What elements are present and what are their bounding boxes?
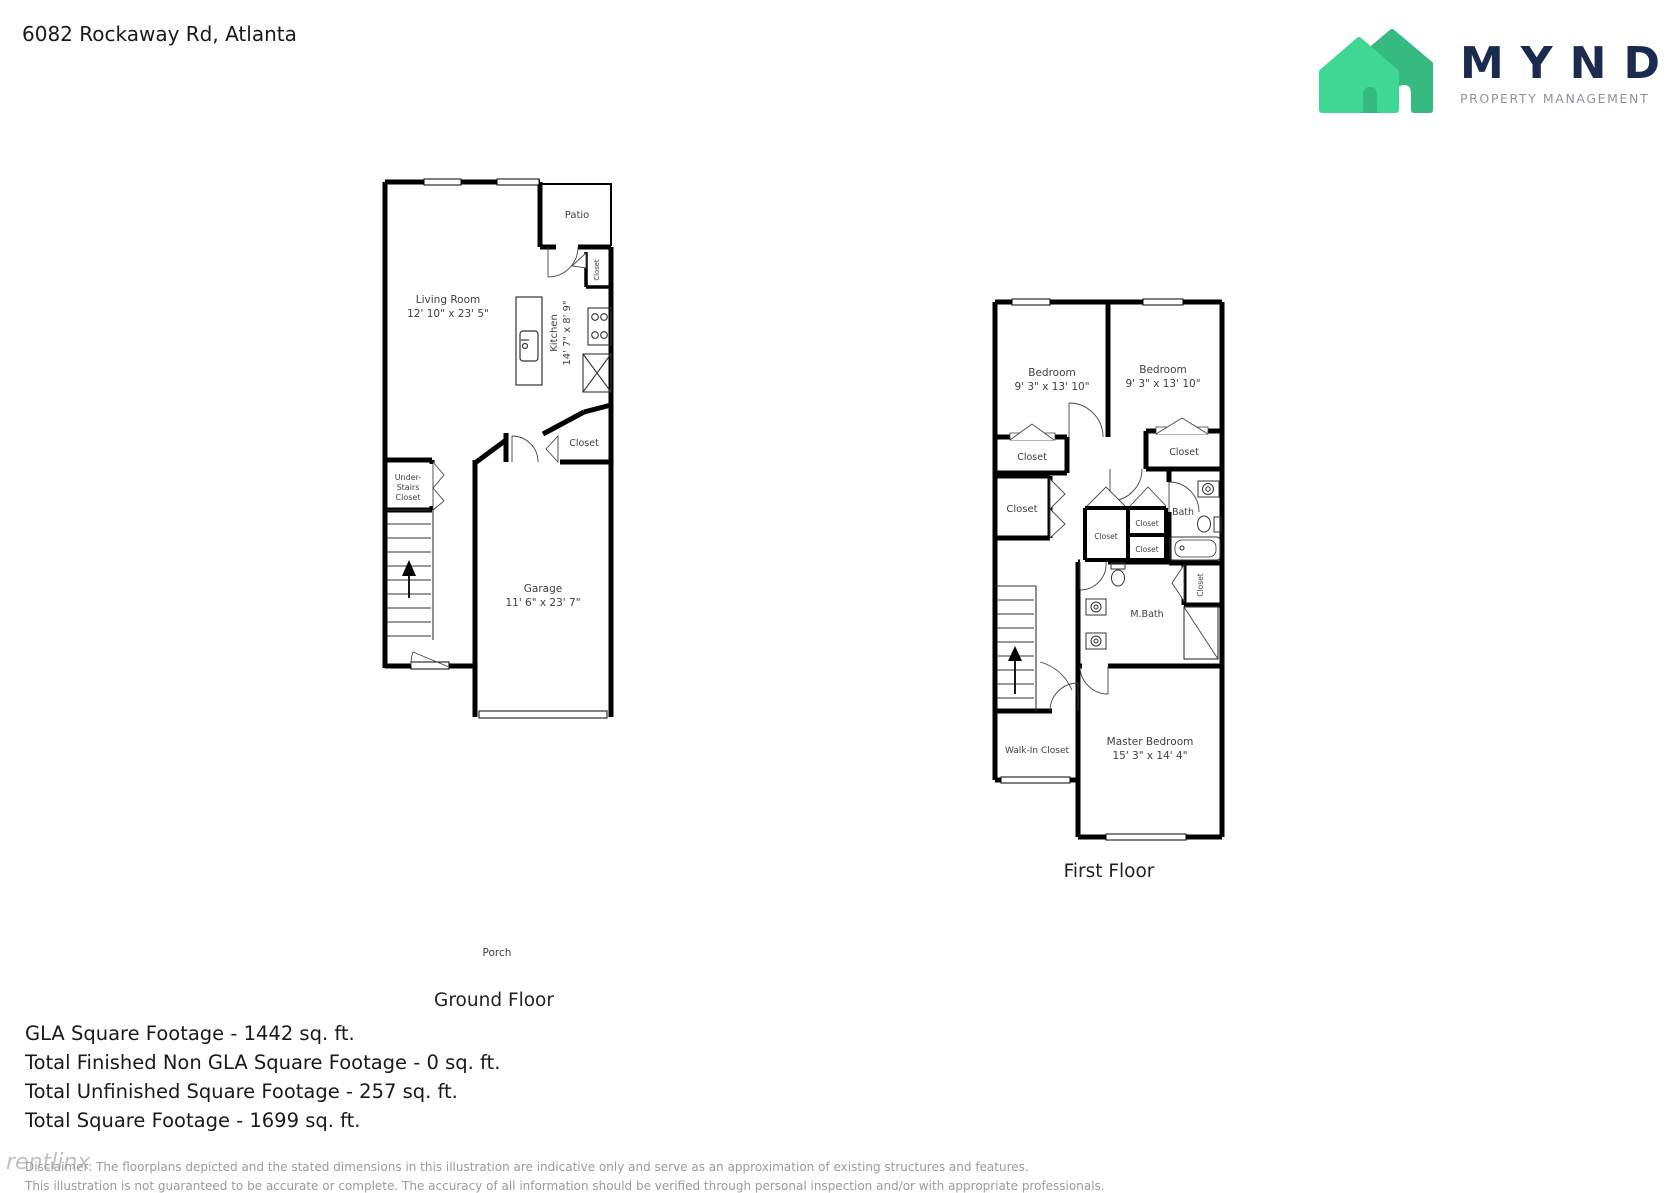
master-bedroom-dims: 15' 3" x 14' 4" <box>1112 750 1187 762</box>
ground-floor-title: Ground Floor <box>384 990 604 1011</box>
patio-label: Patio <box>565 210 590 221</box>
bedroom-left-label: Bedroom <box>1028 367 1076 379</box>
stat-line: Total Finished Non GLA Square Footage - … <box>25 1048 500 1077</box>
living-room-label: Living Room <box>416 294 480 306</box>
kitchen-island <box>516 297 542 385</box>
stat-line: Total Unfinished Square Footage - 257 sq… <box>25 1077 500 1106</box>
hall-closet-label: Closet <box>1006 504 1037 515</box>
disclaimer-line-2: This illustration is not guaranteed to b… <box>25 1179 1105 1193</box>
bedr-closet-label: Closet <box>1169 447 1199 458</box>
kitchen-label: Kitchen <box>549 314 560 352</box>
under-stairs-closet-line2: Stairs <box>397 483 420 492</box>
master-bedroom-label: Master Bedroom <box>1107 736 1194 748</box>
first-floor-title: First Floor <box>999 861 1219 882</box>
living-room-dims: 12' 10" x 23' 5" <box>407 308 489 320</box>
mbath-label: M.Bath <box>1130 609 1163 620</box>
under-stairs-closet-line1: Under- <box>395 473 422 482</box>
garage-door <box>479 711 607 718</box>
first-floor-plan: Bedroom 9' 3" x 13' 10" Bedroom 9' 3" x … <box>995 299 1222 840</box>
bath-toilet-icon <box>1198 516 1222 532</box>
garage-label: Garage <box>524 583 562 595</box>
stat-line: GLA Square Footage - 1442 sq. ft. <box>25 1019 500 1048</box>
under-stairs-closet-line3: Closet <box>396 493 421 502</box>
floorplan-canvas: Living Room 12' 10" x 23' 5" Patio Close… <box>0 0 1680 1188</box>
porch-label: Porch <box>483 947 512 959</box>
entry-threshold <box>411 662 449 669</box>
bath-label: Bath <box>1172 507 1194 518</box>
mbath-sinks-icon <box>1086 599 1106 649</box>
mbath-toilet-icon <box>1111 563 1125 586</box>
stat-line: Total Square Footage - 1699 sq. ft. <box>25 1106 500 1135</box>
small-closet-label-3: Closet <box>1135 545 1158 554</box>
disclaimer-line-1: Disclaimer: The floorplans depicted and … <box>25 1160 1029 1174</box>
small-closet-label-1: Closet <box>1094 532 1117 541</box>
bedroom-left-dims: 9' 3" x 13' 10" <box>1014 381 1089 393</box>
square-footage-stats: GLA Square Footage - 1442 sq. ft. Total … <box>25 1019 500 1135</box>
hall-closet-label: Closet <box>569 438 599 449</box>
counter-icon <box>583 354 611 392</box>
small-closet-label-2: Closet <box>1135 519 1158 528</box>
kitchen-dims: 14' 7" x 8' 9" <box>562 300 573 365</box>
stove-icon <box>588 308 611 345</box>
bedroom-right-dims: 9' 3" x 13' 10" <box>1125 378 1200 390</box>
bath-closet-label: Closet <box>1196 573 1205 596</box>
bathtub-icon <box>1170 537 1220 560</box>
walk-in-closet-label: Walk-In Closet <box>1005 746 1070 756</box>
garage-dims: 11' 6" x 23' 7" <box>505 597 580 609</box>
bedl-closet-label: Closet <box>1017 452 1047 463</box>
bath-sink-icon <box>1198 481 1219 497</box>
patio-closet-label: Closet <box>593 259 601 281</box>
ground-floor-plan: Living Room 12' 10" x 23' 5" Patio Close… <box>385 179 611 959</box>
shower-icon <box>1184 607 1218 659</box>
bedroom-right-label: Bedroom <box>1139 364 1187 376</box>
